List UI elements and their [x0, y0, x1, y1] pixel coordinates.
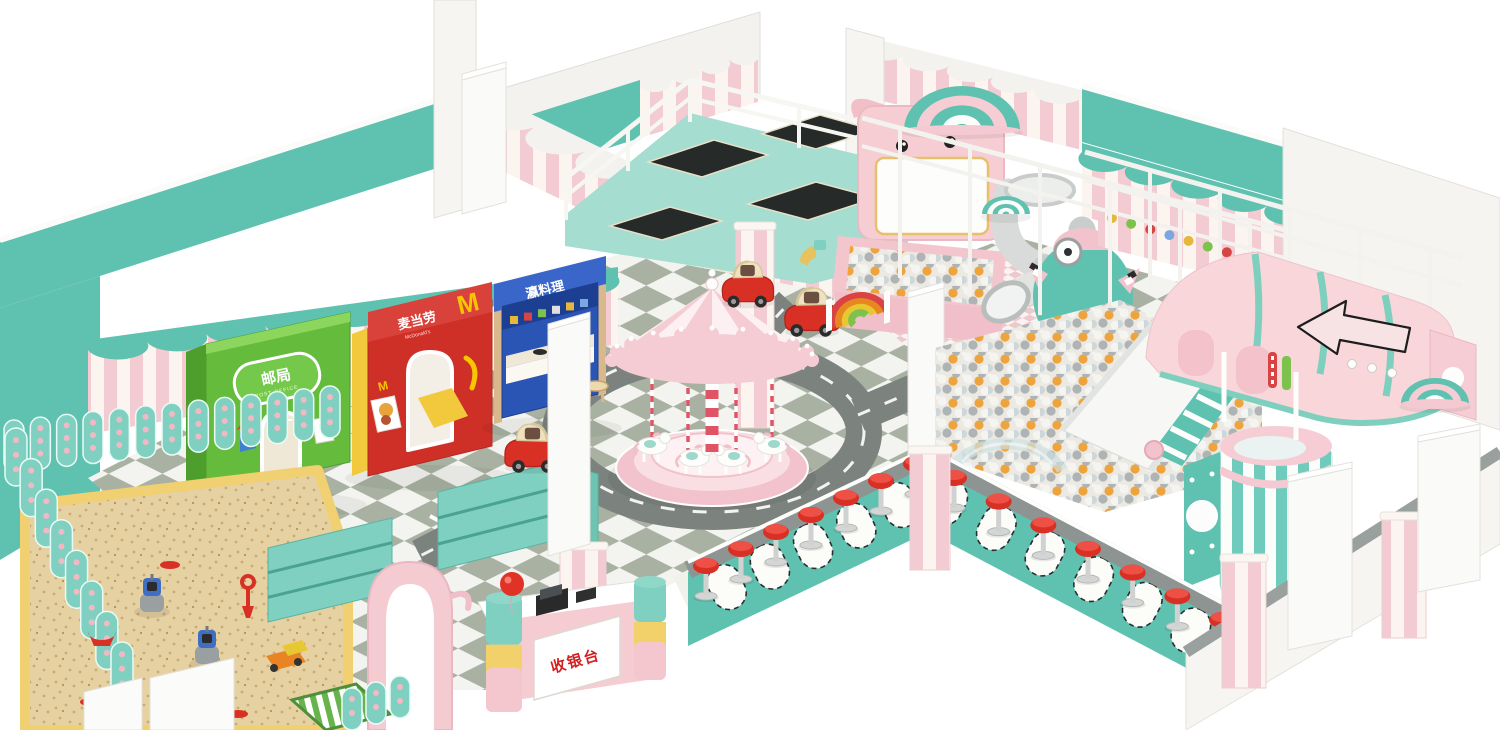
- canopy-dot: [1368, 364, 1377, 373]
- menu-item: [538, 309, 546, 317]
- plank-dot: [373, 690, 379, 696]
- fence-plank: [241, 395, 261, 447]
- plank-dot: [104, 650, 110, 656]
- plank-dot: [274, 425, 280, 431]
- roof-bead: [810, 352, 815, 357]
- canopy-dot: [1348, 360, 1357, 369]
- plank-dot: [169, 411, 175, 417]
- white-pillar: [548, 312, 590, 556]
- fence-plank: [162, 403, 182, 455]
- bus-window: [1178, 330, 1214, 376]
- plank-dot: [28, 497, 34, 503]
- stair-ball-finial: [1145, 441, 1163, 459]
- plank-dot: [195, 434, 201, 440]
- banded-column: [486, 592, 522, 712]
- plank-dot: [74, 574, 80, 580]
- fence-plank: [136, 406, 156, 458]
- plank-dot: [37, 451, 43, 457]
- cashier-desk: 收银台: [478, 572, 666, 712]
- plank-dot: [248, 403, 254, 409]
- roof-bead: [791, 336, 796, 341]
- roof-bead: [710, 326, 715, 331]
- block-toy: [814, 240, 826, 250]
- plank-dot: [143, 427, 149, 433]
- plank-dot: [89, 590, 95, 596]
- bus-window: [1236, 346, 1272, 394]
- menu-item: [524, 313, 532, 321]
- plank-dot: [119, 651, 125, 657]
- plank-dot: [37, 425, 43, 431]
- plank-dot: [274, 412, 280, 418]
- plank-dot: [58, 543, 64, 549]
- menu-item: [510, 316, 518, 324]
- plank-dot: [28, 468, 34, 474]
- plank-dot: [116, 429, 122, 435]
- fence-plank: [109, 409, 129, 461]
- playground-scene: 邮局POST OFFICE麦当劳McDonald'sMM瀛料理Japanese …: [0, 0, 1500, 730]
- plank-dot: [43, 498, 49, 504]
- plank-dot: [397, 684, 403, 690]
- pink-striped-pillar: [1220, 554, 1268, 688]
- plank-dot: [64, 448, 70, 454]
- plank-dot: [13, 466, 19, 472]
- white-pillar: [1288, 462, 1352, 650]
- plank-dot: [195, 408, 201, 414]
- plank-dot: [169, 436, 175, 442]
- activity-toy: [1164, 230, 1174, 240]
- plank-dot: [43, 513, 49, 519]
- plank-dot: [119, 666, 125, 672]
- plank-dot: [349, 696, 355, 702]
- plank-dot: [13, 452, 19, 458]
- plank-dot: [90, 420, 96, 426]
- plank-dot: [222, 405, 228, 411]
- indoor-playground-render: 邮局POST OFFICE麦当劳McDonald'sMM瀛料理Japanese …: [0, 0, 1500, 730]
- plank-dot: [222, 431, 228, 437]
- fence-plank: [366, 682, 386, 724]
- plank-dot: [90, 445, 96, 451]
- plank-dot: [327, 394, 333, 400]
- fence-plank: [188, 400, 208, 452]
- scene-root: 邮局POST OFFICE麦当劳McDonald'sMM瀛料理Japanese …: [0, 0, 1500, 730]
- roof-bead: [805, 344, 810, 349]
- plank-dot: [327, 407, 333, 413]
- plank-dot: [37, 438, 43, 444]
- roof-bead: [629, 336, 634, 341]
- roof-bead: [768, 331, 773, 336]
- plank-dot: [248, 415, 254, 421]
- fence-plank: [294, 389, 314, 441]
- fence-plank: [83, 412, 103, 464]
- plank-dot: [58, 558, 64, 564]
- roof-bead: [741, 327, 746, 332]
- fence-plank: [267, 392, 287, 444]
- fence-plank: [57, 414, 77, 466]
- fence-plank: [215, 397, 235, 449]
- plank-dot: [64, 422, 70, 428]
- plank-dot: [13, 437, 19, 443]
- plank-dot: [104, 621, 110, 627]
- canopy-dot: [1388, 369, 1397, 378]
- plank-dot: [248, 428, 254, 434]
- fence-plank: [320, 386, 340, 438]
- plank-dot: [89, 605, 95, 611]
- menu-item: [552, 306, 560, 314]
- plank-dot: [74, 589, 80, 595]
- plank-dot: [222, 418, 228, 424]
- porthole-window: [1187, 501, 1217, 531]
- fence-plank: [390, 676, 410, 718]
- plank-dot: [58, 529, 64, 535]
- plank-dot: [89, 619, 95, 625]
- plank-dot: [116, 442, 122, 448]
- plank-dot: [301, 397, 307, 403]
- plank-dot: [195, 421, 201, 427]
- plank-dot: [74, 559, 80, 565]
- plank-dot: [301, 422, 307, 428]
- plank-dot: [116, 417, 122, 423]
- plank-dot: [169, 424, 175, 430]
- activity-toy: [1203, 242, 1213, 252]
- white-pillar: [462, 62, 506, 214]
- plank-dot: [274, 400, 280, 406]
- white-pillar: [1418, 424, 1480, 592]
- plank-dot: [143, 414, 149, 420]
- roof-bead: [651, 331, 656, 336]
- roof-bead: [614, 344, 619, 349]
- pink-striped-pillar: [908, 446, 952, 570]
- roof-bead: [679, 327, 684, 332]
- plank-dot: [43, 528, 49, 534]
- canopy-rib: [1255, 254, 1259, 354]
- plank-dot: [349, 710, 355, 716]
- activity-toy: [1222, 247, 1232, 257]
- menu-item: [566, 302, 574, 310]
- plank-dot: [90, 432, 96, 438]
- climb-bar: [1282, 356, 1291, 390]
- plank-dot: [397, 698, 403, 704]
- plank-dot: [143, 439, 149, 445]
- banded-column: [634, 576, 666, 680]
- left-teal-wall: [0, 86, 487, 308]
- plank-dot: [28, 482, 34, 488]
- plank-dot: [64, 435, 70, 441]
- fence-plank: [342, 688, 362, 730]
- activity-toy: [1184, 236, 1194, 246]
- menu-item: [580, 299, 588, 307]
- plank-dot: [327, 419, 333, 425]
- plank-dot: [373, 704, 379, 710]
- plank-dot: [301, 410, 307, 416]
- toy-disc: [160, 561, 180, 569]
